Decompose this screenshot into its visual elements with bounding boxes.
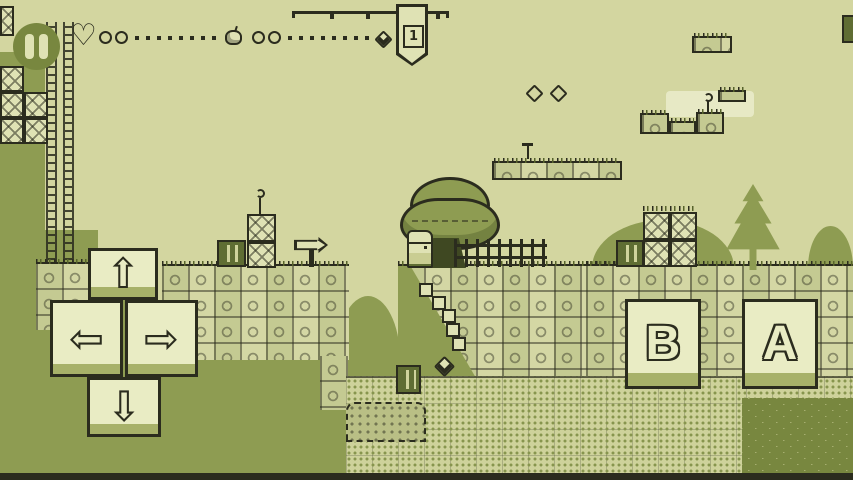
floating-platform	[696, 112, 724, 134]
progress-tick	[366, 13, 370, 19]
sprout-plant	[704, 93, 713, 102]
a-action-button[interactable]: A	[742, 299, 818, 389]
stepping-block	[442, 309, 456, 323]
progress-tick	[436, 13, 440, 19]
progress-track-endcap	[446, 11, 449, 18]
gem-icon	[374, 30, 392, 48]
filled-slot-ring	[268, 31, 281, 44]
apple-slot-row	[252, 31, 369, 44]
empty-slot-dot	[343, 36, 347, 40]
flower	[522, 143, 533, 146]
empty-slot-dot	[190, 36, 194, 40]
cracked-block	[247, 214, 276, 242]
floating-platform	[692, 36, 732, 53]
wooden-crate	[217, 240, 246, 267]
cracked-block	[670, 240, 697, 267]
cracked-block	[0, 6, 14, 36]
b-button-label: B	[646, 320, 681, 368]
wooden-crate	[616, 240, 644, 267]
stepping-block	[419, 283, 433, 297]
empty-slot-dot	[157, 36, 161, 40]
cracked-block	[24, 92, 48, 118]
filled-slot-ring	[99, 31, 112, 44]
heart-slot-row	[99, 31, 216, 44]
heart-slots-filled	[99, 31, 128, 44]
floating-platform	[492, 161, 622, 180]
game-screen: ♡ 1 ⇧ ⇦ ⇨ ⇩ B	[0, 0, 853, 480]
empty-slot-dot	[212, 36, 216, 40]
dpad-down-button[interactable]: ⇩	[87, 377, 161, 437]
screen-bottom-edge	[0, 473, 853, 480]
dpad-left-button[interactable]: ⇦	[50, 300, 123, 377]
arrow-down-icon: ⇩	[106, 386, 141, 428]
arrow-left-icon: ⇦	[69, 318, 104, 360]
stepping-block	[446, 323, 460, 337]
apple-slots-empty	[284, 36, 369, 40]
a-button-label: A	[763, 320, 798, 368]
apple-slots-filled	[252, 31, 281, 44]
empty-slot-dot	[332, 36, 336, 40]
pine-tree	[724, 184, 782, 270]
floating-platform	[640, 113, 669, 134]
arrow-sign-face	[297, 240, 325, 250]
heart-slots-empty	[131, 36, 216, 40]
diamond-outline	[525, 84, 543, 102]
picket-fence	[454, 239, 547, 267]
b-action-button[interactable]: B	[625, 299, 701, 389]
empty-slot-dot	[135, 36, 139, 40]
cracked-block	[0, 92, 24, 118]
empty-slot-dot	[354, 36, 358, 40]
stone-column	[320, 356, 348, 410]
floating-platform	[669, 121, 696, 134]
pause-button[interactable]	[13, 23, 60, 70]
empty-slot-dot	[179, 36, 183, 40]
sprout-plant	[259, 198, 261, 214]
vine-ladder	[63, 22, 74, 268]
empty-slot-dot	[299, 36, 303, 40]
dpad-right-button[interactable]: ⇨	[125, 300, 198, 377]
arrow-sign-post	[309, 250, 314, 267]
empty-slot-dot	[288, 36, 292, 40]
checkpoint-banner: 1	[396, 4, 428, 66]
diamond-outline	[549, 84, 567, 102]
apple-icon	[225, 30, 242, 45]
empty-slot-dot	[365, 36, 369, 40]
filled-slot-ring	[252, 31, 265, 44]
checkpoint-number: 1	[403, 25, 424, 48]
progress-track-endcap	[292, 11, 295, 18]
stepping-block	[452, 337, 466, 351]
stepping-block	[432, 296, 446, 310]
heart-icon: ♡	[70, 22, 97, 50]
cracked-block	[670, 212, 697, 240]
flower	[527, 145, 529, 159]
dpad-up-button[interactable]: ⇧	[88, 248, 158, 300]
empty-slot-dot	[201, 36, 205, 40]
cracked-block	[643, 240, 670, 267]
empty-slot-dot	[146, 36, 150, 40]
player-character	[407, 230, 433, 268]
empty-slot-dot	[310, 36, 314, 40]
crate-icon	[842, 15, 853, 43]
arrow-right-icon: ⇨	[144, 318, 179, 360]
progress-tick	[330, 13, 334, 19]
sprout-plant	[256, 189, 265, 198]
cracked-block	[24, 118, 48, 144]
cracked-block	[0, 66, 24, 92]
moss-tiles	[346, 402, 426, 442]
cracked-block	[247, 242, 276, 268]
filled-slot-ring	[115, 31, 128, 44]
floating-platform	[718, 90, 746, 102]
triangle-pattern-ground	[742, 398, 853, 474]
arrow-up-icon: ⇧	[105, 253, 140, 295]
empty-slot-dot	[168, 36, 172, 40]
cracked-block	[643, 212, 670, 240]
empty-slot-dot	[321, 36, 325, 40]
wooden-crate	[396, 365, 421, 394]
cracked-block	[0, 118, 24, 144]
